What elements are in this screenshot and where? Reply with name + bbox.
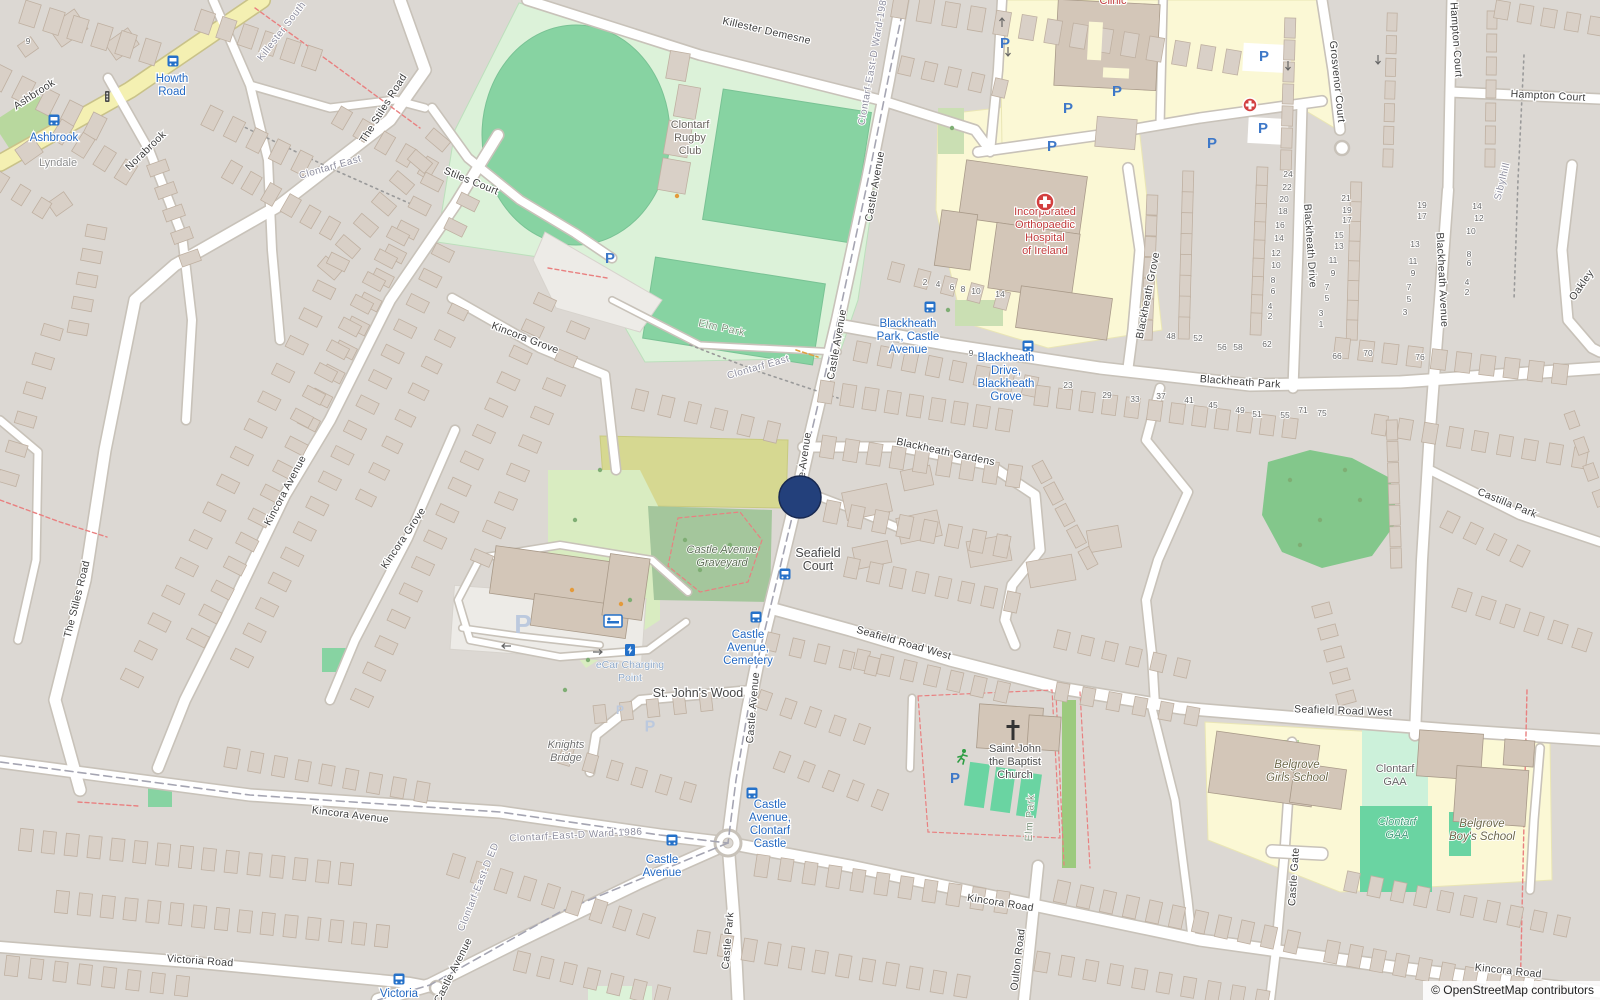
tree-icon (586, 658, 590, 662)
building (192, 905, 207, 928)
label-line: Seafield (795, 546, 840, 560)
building (802, 861, 818, 885)
parking-icon: P (616, 703, 624, 717)
house-number: 70 (1363, 348, 1373, 358)
building (593, 704, 607, 723)
label-line: Elm Park (1023, 794, 1037, 842)
building (922, 879, 938, 903)
bus-icon-light (932, 309, 934, 311)
bus-icon-light (1030, 348, 1032, 350)
building (64, 833, 79, 856)
building (929, 398, 946, 422)
bus-icon-light (753, 619, 755, 621)
building (1178, 317, 1190, 339)
building (817, 380, 834, 404)
house-number: 62 (1262, 339, 1272, 349)
house-number: 9 (26, 36, 31, 46)
bus-stop-label-line: Road (158, 86, 186, 98)
house-number: 14 (1274, 233, 1284, 243)
bed (607, 621, 619, 624)
house-number: 71 (1298, 405, 1308, 415)
house-number: 12 (1474, 213, 1484, 223)
building (995, 408, 1012, 432)
label-line: GAA (1383, 776, 1407, 788)
building (1054, 682, 1070, 702)
building (866, 442, 883, 466)
building (1083, 959, 1099, 981)
label-line: Belgrove (1459, 818, 1504, 830)
tree-icon (683, 538, 687, 542)
building (1132, 968, 1148, 990)
building (18, 828, 33, 851)
house-number: 20 (1279, 194, 1289, 204)
label-line: Clontarf (1376, 763, 1415, 775)
building (174, 975, 189, 996)
house-number: 9 (1411, 268, 1416, 278)
house-number: 52 (1193, 333, 1203, 343)
label-line: Clinic (1100, 0, 1127, 7)
building (352, 922, 367, 945)
bus-icon-window (927, 304, 934, 308)
building (889, 446, 906, 470)
location-marker[interactable] (779, 476, 821, 518)
house-number: 1 (1319, 319, 1324, 329)
school-label: BelgroveGirls School (1266, 759, 1328, 784)
building (1146, 195, 1158, 215)
building (87, 836, 102, 859)
house-number: 12 (1271, 248, 1281, 258)
building (1214, 408, 1230, 430)
house-number: 48 (1166, 331, 1176, 341)
bus-icon-light (51, 122, 53, 124)
building (1430, 349, 1447, 371)
charging-station-icon (625, 644, 635, 656)
building (1385, 58, 1396, 76)
building (100, 895, 115, 918)
house-number: 76 (1415, 352, 1425, 362)
label-line: Court (803, 559, 834, 573)
building (1521, 439, 1538, 461)
house-number: 6 (1467, 258, 1472, 268)
building (1486, 103, 1496, 121)
bus-stop-label-line: Avenue (889, 344, 928, 356)
building (1145, 216, 1157, 236)
cross-v (1012, 720, 1015, 740)
pillow (608, 618, 611, 621)
label-line: Lyndale (39, 157, 77, 169)
bus-icon-window (170, 58, 177, 62)
building (1390, 526, 1402, 546)
building (657, 158, 690, 194)
tree-icon (1318, 518, 1322, 522)
building (1479, 355, 1496, 377)
tree-icon (1298, 543, 1302, 547)
parking-icon: P (1258, 120, 1268, 137)
building (1283, 62, 1295, 82)
bus-stop-label-line: Park, Castle (877, 331, 940, 343)
tree-icon (573, 518, 577, 522)
bus-icon-light (396, 981, 398, 983)
building (1158, 701, 1174, 721)
house-number: 51 (1252, 409, 1262, 419)
label-line: Girls School (1266, 772, 1328, 784)
house-number: 10 (1271, 260, 1281, 270)
bus-stop-label-line: Avenue, (727, 642, 769, 654)
house-number: 2 (1465, 287, 1470, 297)
building (906, 394, 923, 418)
house-number: 6 (950, 282, 955, 292)
parking-icon: P (1047, 138, 1057, 155)
label-line: St. John's Wood (653, 686, 743, 700)
house-number: 4 (1465, 277, 1470, 287)
hospital-cross-icon (1243, 98, 1257, 112)
building (1485, 126, 1495, 144)
house-number: 10 (971, 286, 981, 296)
bus-stop-label: CastleAvenue (643, 854, 682, 879)
house-number: 45 (1208, 400, 1218, 410)
house-number: 29 (1102, 390, 1112, 400)
bus-icon-window (1025, 343, 1032, 347)
label-line: the Baptist (989, 756, 1041, 768)
bus-icon-light (749, 795, 751, 797)
house-number: 66 (1332, 351, 1342, 361)
building (1471, 430, 1488, 452)
bus-stop-label-line: Victoria (380, 988, 419, 1000)
building (1496, 435, 1513, 457)
tree-icon (946, 308, 950, 312)
building (1348, 261, 1360, 281)
building (1517, 4, 1534, 24)
label-line: Church (997, 769, 1032, 781)
label-line: Castle Avenue (687, 544, 758, 556)
building (293, 858, 308, 881)
tree-icon (563, 688, 567, 692)
bus-icon-light (401, 981, 403, 983)
building (1180, 254, 1192, 276)
building (1182, 192, 1194, 214)
rugby-pitch (703, 89, 872, 243)
building (54, 890, 69, 913)
building (1079, 391, 1095, 413)
parking-icon: P (605, 250, 615, 267)
building (29, 958, 44, 979)
building (102, 967, 117, 988)
building (1421, 422, 1438, 444)
bus-icon-light (669, 842, 671, 844)
label-line: Graveyard (696, 557, 748, 569)
house-number: 5 (1407, 294, 1412, 304)
building (1486, 57, 1496, 75)
bus-stop-label: Victoria (380, 988, 419, 1000)
house-number: 58 (1233, 342, 1243, 352)
bus-stop-label-line: Blackheath (880, 318, 937, 330)
building (1383, 126, 1394, 144)
house-number: 2 (923, 277, 928, 287)
building (1095, 116, 1137, 149)
bus-stop-label: HowthRoad (156, 73, 189, 98)
bus-stop-icon (780, 569, 791, 580)
building (1485, 149, 1495, 167)
bus-stop-label-line: Blackheath (978, 378, 1035, 390)
bus-icon-light (1025, 348, 1027, 350)
building (1080, 687, 1096, 707)
big-label: St. John's Wood (653, 686, 743, 700)
house-number: 8 (1271, 275, 1276, 285)
label-line: Belgrove (1274, 759, 1319, 771)
building (133, 841, 148, 864)
building (374, 924, 389, 947)
house-number: 3 (1319, 308, 1324, 318)
tree-icon (598, 468, 602, 472)
rugby-oval (482, 25, 670, 245)
bus-stop-label-line: Avenue (643, 867, 682, 879)
building (862, 387, 879, 411)
house-number: 17 (1342, 215, 1352, 225)
building (1347, 300, 1359, 320)
house-number: 21 (1341, 193, 1351, 203)
house-number: 14 (995, 289, 1005, 299)
building (1034, 385, 1050, 407)
building (1282, 84, 1294, 104)
bus-icon-light (754, 795, 756, 797)
house-number: 5 (1325, 293, 1330, 303)
bus-stop-label: Ashbrook (30, 132, 79, 144)
building (1106, 692, 1122, 712)
building (898, 876, 914, 900)
parking-icon: P (1112, 83, 1122, 100)
bus-icon-light (170, 63, 172, 65)
building (123, 898, 138, 921)
bus-stop-label-line: Castle (754, 799, 787, 811)
church-lane (910, 698, 912, 768)
building (1005, 464, 1022, 488)
building-courtyard (1103, 67, 1129, 78)
building (843, 439, 860, 463)
bus-icon-window (669, 837, 676, 841)
label-line: Clontarf (671, 119, 710, 131)
building (1388, 462, 1400, 482)
parking-icon: P (1063, 100, 1073, 117)
house-number: 14 (1472, 201, 1482, 211)
building (224, 850, 239, 873)
hospital-cross-icon (1036, 193, 1054, 211)
bus-stop-icon (168, 56, 179, 67)
parking-icon: P (1259, 48, 1269, 65)
building (826, 865, 842, 889)
building (338, 862, 353, 885)
building (973, 405, 990, 429)
cross-h (1007, 725, 1020, 728)
house-number: 11 (1409, 256, 1418, 266)
house-number: 24 (1283, 169, 1293, 179)
bus-stop-icon (394, 974, 405, 985)
building (306, 917, 321, 940)
house-number: 13 (1334, 241, 1344, 251)
building (1347, 280, 1359, 300)
building (1147, 400, 1163, 422)
poi-dot (570, 588, 574, 592)
label-line: Point (618, 672, 642, 684)
building-courtyard (1087, 22, 1103, 61)
building (146, 900, 161, 923)
building (1346, 320, 1358, 340)
building (1184, 706, 1200, 726)
bus-stop-label-line: Howth (156, 73, 189, 85)
bus-icon-light (787, 576, 789, 578)
building (260, 912, 275, 935)
bus-icon-light (674, 842, 676, 844)
building (1487, 34, 1497, 52)
building (1389, 505, 1401, 525)
building (1180, 233, 1192, 255)
bus-stop-label-line: Castle (754, 838, 787, 850)
hotel-bed-icon (604, 615, 622, 627)
building (1056, 388, 1072, 410)
building (156, 843, 171, 866)
label-line: Hospital (1025, 232, 1065, 244)
building (1181, 213, 1193, 235)
house-number: 9 (969, 348, 974, 358)
cul-de-sac (1335, 141, 1349, 155)
house-number: 3 (1403, 307, 1408, 317)
building (110, 838, 125, 861)
building (1284, 40, 1296, 60)
building (1182, 171, 1194, 193)
building (1179, 275, 1191, 297)
bus-icon-window (782, 571, 789, 575)
building (53, 961, 68, 982)
bus-icon-light (782, 576, 784, 578)
building (1385, 81, 1396, 99)
light (106, 99, 108, 101)
bus-icon-window (749, 790, 756, 794)
label-line: Rugby (674, 132, 706, 144)
building (840, 384, 857, 408)
building (1446, 426, 1463, 448)
house-number: 11 (1329, 255, 1338, 265)
house-number: 37 (1156, 391, 1166, 401)
house-number: 56 (1217, 342, 1227, 352)
map-attribution[interactable]: © OpenStreetMap contributors (1423, 981, 1600, 1000)
house-number: 19 (1342, 205, 1352, 215)
cem-label: Castle AvenueGraveyard (687, 544, 758, 569)
house-number: 6 (1271, 286, 1276, 296)
house-number: 9 (1331, 268, 1336, 278)
house-number: 22 (1282, 182, 1292, 192)
building (1179, 296, 1191, 318)
map-canvas[interactable]: 9246810149114852565862667076232933374145… (0, 0, 1600, 1000)
building (237, 910, 252, 933)
building (1387, 13, 1398, 31)
bus-stop-label-line: Clontarf (750, 825, 791, 837)
building (126, 970, 141, 991)
building (754, 854, 770, 878)
building (4, 955, 19, 976)
label-line: Orthopaedic (1015, 219, 1075, 231)
building (602, 554, 650, 621)
building (1350, 182, 1362, 202)
bus-stop-icon (49, 115, 60, 126)
building (77, 893, 92, 916)
bus-icon-light (758, 619, 760, 621)
building (646, 698, 660, 717)
building (316, 860, 331, 883)
building (1564, 12, 1581, 32)
building (150, 972, 165, 993)
park-label: Elm Park (1023, 794, 1037, 842)
house-number: 4 (1268, 301, 1273, 311)
label-line: Knights (548, 739, 585, 751)
light (106, 93, 108, 95)
tree-icon (628, 598, 632, 602)
building (1348, 241, 1360, 261)
place-label: KnightsBridge (548, 739, 585, 764)
poi-dot (619, 602, 623, 606)
house-number: 10 (1466, 226, 1476, 236)
building (41, 831, 56, 854)
house-number: 7 (1407, 282, 1412, 292)
bus-stop-icon (747, 788, 758, 799)
traffic-light-icon (105, 91, 110, 102)
house-number: 17 (1417, 211, 1427, 221)
building (1169, 403, 1185, 425)
house-number: 55 (1280, 410, 1290, 420)
med-label: Clinic (1100, 0, 1127, 7)
building (1486, 80, 1496, 98)
building (1396, 418, 1413, 440)
light (106, 96, 108, 98)
building (1503, 357, 1520, 379)
building (214, 907, 229, 930)
tree-icon (1358, 498, 1362, 502)
bus-stop-label-line: Blackheath (978, 352, 1035, 364)
building (1541, 8, 1558, 28)
bus-stop-label-line: Cemetery (723, 655, 773, 667)
bus-icon-light (927, 309, 929, 311)
building (329, 920, 344, 943)
building (1282, 417, 1298, 439)
building (1281, 128, 1293, 148)
label-line: eCar Charging (596, 659, 664, 671)
house-number: 4 (936, 279, 941, 289)
label-line: Bridge (550, 752, 582, 764)
house-number: 15 (1334, 230, 1344, 240)
bus-stop-label-line: Ashbrook (30, 132, 79, 144)
house-number: 7 (1325, 282, 1330, 292)
bus-stop-label-line: Grove (990, 391, 1021, 403)
bus-icon-light (56, 122, 58, 124)
building (1034, 951, 1050, 973)
bus-stop-label-line: Drive, (991, 365, 1021, 377)
building (1132, 696, 1148, 716)
tree-icon (1343, 468, 1347, 472)
label-line: GAA (1385, 829, 1408, 841)
tree-icon (1288, 478, 1292, 482)
bus-stop-icon (751, 612, 762, 623)
building (1386, 420, 1398, 440)
house-number: 33 (1130, 394, 1140, 404)
elm-park-strip (1062, 700, 1076, 868)
building (1387, 441, 1399, 461)
label-line: Club (679, 145, 702, 157)
map-viewport: 9246810149114852565862667076232933374145… (0, 0, 1600, 1000)
bus-icon-light (175, 63, 177, 65)
bus-stop-icon (1023, 341, 1034, 352)
building (1250, 313, 1262, 335)
building (1192, 406, 1208, 428)
parking-icon: P (950, 770, 960, 787)
suburb-label: Lyndale (39, 157, 77, 169)
